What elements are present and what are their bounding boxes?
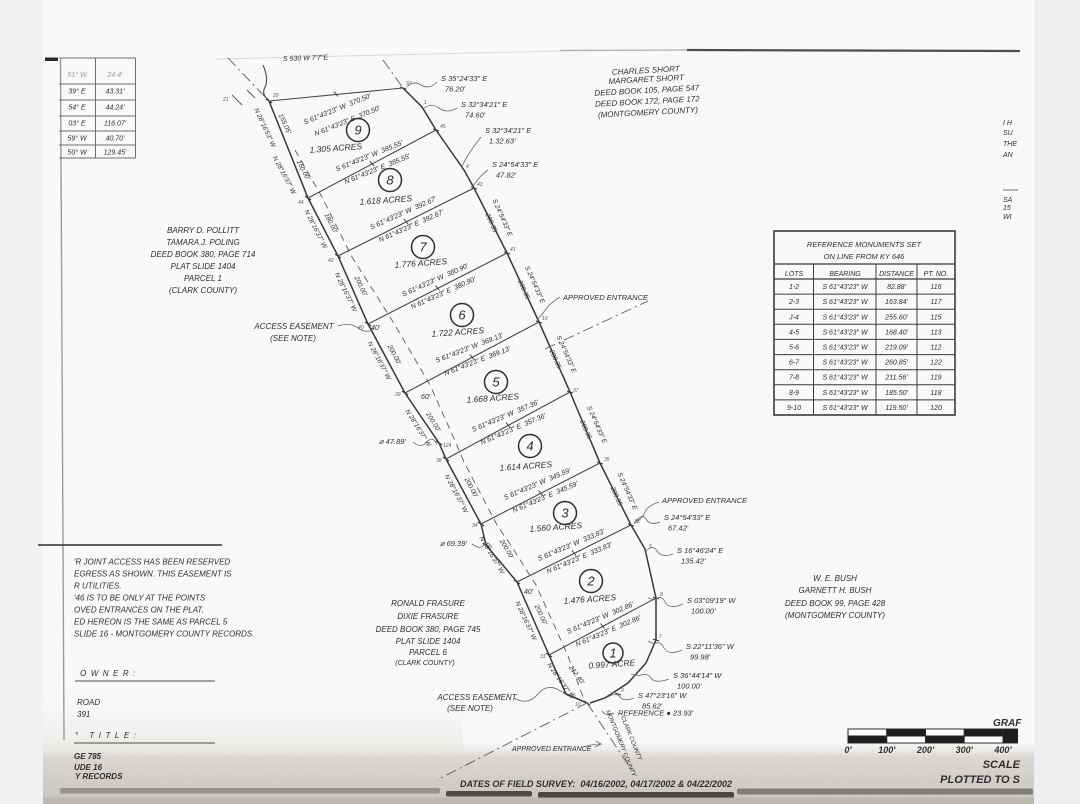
svg-text:44.24': 44.24' bbox=[106, 105, 126, 112]
svg-text:S 22°11′36″ W: S 22°11′36″ W bbox=[686, 642, 735, 651]
svg-text:135.42': 135.42' bbox=[681, 557, 706, 566]
svg-text:S 61°43′23″ W: S 61°43′23″ W bbox=[822, 328, 869, 336]
svg-text:(CLARK COUNTY): (CLARK COUNTY) bbox=[169, 286, 237, 295]
svg-text:EGRESS AS SHOWN. THIS EASEMENT: EGRESS AS SHOWN. THIS EASEMENT IS bbox=[74, 570, 232, 579]
svg-text:BEARING: BEARING bbox=[829, 271, 861, 278]
svg-text:S 61°43′23″ W: S 61°43′23″ W bbox=[822, 389, 869, 397]
svg-text:74.60': 74.60' bbox=[465, 111, 486, 120]
svg-text:TAMARA J. POLING: TAMARA J. POLING bbox=[166, 238, 239, 247]
svg-text:° TITLE:: ° TITLE: bbox=[75, 731, 140, 740]
svg-text:118: 118 bbox=[930, 390, 941, 397]
svg-text:120: 120 bbox=[930, 405, 942, 412]
svg-text:4-5: 4-5 bbox=[789, 329, 799, 336]
svg-text:117: 117 bbox=[930, 299, 942, 306]
svg-text:7: 7 bbox=[659, 634, 662, 640]
svg-text:116: 116 bbox=[930, 284, 941, 291]
svg-text:34: 34 bbox=[472, 523, 478, 529]
svg-text:43.31': 43.31' bbox=[106, 89, 126, 96]
svg-text:S 32°34′21″ E: S 32°34′21″ E bbox=[485, 126, 532, 135]
svg-text:LOTS: LOTS bbox=[785, 271, 804, 278]
svg-text:GE 785: GE 785 bbox=[74, 752, 102, 761]
svg-text:(SEE NOTE): (SEE NOTE) bbox=[270, 334, 316, 343]
svg-text:WI: WI bbox=[1003, 214, 1012, 221]
svg-text:5: 5 bbox=[649, 544, 652, 550]
svg-text:PLAT SLIDE 1404: PLAT SLIDE 1404 bbox=[171, 262, 236, 271]
svg-text:1: 1 bbox=[424, 100, 427, 106]
svg-text:46: 46 bbox=[570, 693, 576, 699]
svg-text:45: 45 bbox=[440, 124, 446, 130]
svg-text:122: 122 bbox=[930, 360, 942, 367]
svg-text:8: 8 bbox=[660, 592, 663, 598]
svg-text:S 61°43′23″ W: S 61°43′23″ W bbox=[822, 404, 869, 412]
svg-text:DEED BOOK 99, PAGE 428: DEED BOOK 99, PAGE 428 bbox=[785, 599, 886, 608]
svg-text:ED HEREON IS THE SAME AS PARCE: ED HEREON IS THE SAME AS PARCEL 5 bbox=[74, 618, 228, 627]
svg-text:119: 119 bbox=[930, 375, 941, 382]
svg-text:59° W: 59° W bbox=[67, 135, 88, 143]
svg-text:S 03°09′19″ W: S 03°09′19″ W bbox=[687, 596, 736, 605]
svg-text:9: 9 bbox=[621, 688, 624, 694]
svg-text:S 61°43′23″ W: S 61°43′23″ W bbox=[822, 374, 869, 382]
svg-text:′46 IS TO BE ONLY AT THE POINT: ′46 IS TO BE ONLY AT THE POINTS bbox=[74, 594, 206, 603]
svg-text:168.40': 168.40' bbox=[885, 329, 908, 336]
svg-text:APPROVED ENTRANCE: APPROVED ENTRANCE bbox=[562, 293, 649, 302]
svg-text:PLAT SLIDE 1404: PLAT SLIDE 1404 bbox=[396, 637, 461, 646]
svg-text:112: 112 bbox=[930, 345, 941, 352]
svg-text:300': 300' bbox=[956, 745, 974, 755]
svg-text:REFERENCE ● 23.93′: REFERENCE ● 23.93′ bbox=[618, 709, 694, 718]
svg-text:03° E: 03° E bbox=[68, 120, 86, 128]
svg-text:1.32.63': 1.32.63' bbox=[489, 137, 516, 146]
svg-text:S 36°44′14″ W: S 36°44′14″ W bbox=[673, 671, 722, 680]
svg-text:39° E: 39° E bbox=[68, 88, 86, 96]
svg-text:113: 113 bbox=[930, 329, 941, 336]
svg-text:⌀ 69.39′: ⌀ 69.39′ bbox=[440, 539, 467, 548]
svg-text:PT. NO.: PT. NO. bbox=[924, 271, 949, 278]
svg-text:200': 200' bbox=[916, 745, 935, 755]
svg-text:185.50': 185.50' bbox=[885, 390, 908, 397]
svg-text:ON LINE FROM KY 646: ON LINE FROM KY 646 bbox=[824, 252, 906, 261]
svg-text:ACCESS EASEMENT: ACCESS EASEMENT bbox=[436, 693, 517, 702]
svg-text:GARNETT H. BUSH: GARNETT H. BUSH bbox=[799, 586, 872, 595]
svg-text:W. E. BUSH: W. E. BUSH bbox=[813, 574, 857, 583]
svg-text:4: 4 bbox=[526, 439, 533, 454]
svg-text:S 16°46′24″ E: S 16°46′24″ E bbox=[677, 546, 724, 555]
svg-text:REFERENCE MONUMENTS SET: REFERENCE MONUMENTS SET bbox=[807, 240, 923, 249]
svg-text:163.84': 163.84' bbox=[885, 299, 908, 306]
svg-text:⌀ 47.89′: ⌀ 47.89′ bbox=[379, 437, 406, 446]
svg-text:OWNER:: OWNER: bbox=[80, 669, 140, 678]
svg-text:6-7: 6-7 bbox=[789, 360, 800, 367]
svg-text:115: 115 bbox=[930, 314, 941, 321]
svg-text:99.98': 99.98' bbox=[690, 653, 711, 662]
svg-text:44: 44 bbox=[298, 200, 304, 206]
svg-text:3: 3 bbox=[561, 506, 569, 521]
svg-text:24.4′: 24.4′ bbox=[107, 72, 124, 79]
svg-text:60': 60' bbox=[421, 394, 431, 401]
svg-text:S 24°54′33″ E: S 24°54′33″ E bbox=[664, 513, 711, 522]
svg-text:10: 10 bbox=[542, 316, 548, 322]
svg-text:260.85': 260.85' bbox=[884, 360, 908, 367]
svg-text:51° W: 51° W bbox=[67, 71, 88, 79]
svg-text:DISTANCE: DISTANCE bbox=[879, 271, 914, 278]
svg-text:GRAF: GRAF bbox=[993, 718, 1022, 729]
svg-text:SU: SU bbox=[1003, 130, 1014, 137]
svg-text:40.70': 40.70' bbox=[106, 136, 126, 143]
svg-text:33: 33 bbox=[634, 519, 640, 525]
svg-text:21: 21 bbox=[222, 97, 229, 103]
svg-text:38: 38 bbox=[436, 458, 442, 464]
svg-text:R UTILITIES.: R UTILITIES. bbox=[74, 582, 122, 591]
svg-text:219.09': 219.09' bbox=[884, 345, 908, 352]
svg-text:SA: SA bbox=[1003, 197, 1013, 204]
svg-text:APPROVED ENTRANCE: APPROVED ENTRANCE bbox=[511, 746, 592, 753]
svg-text:76.20': 76.20' bbox=[445, 85, 466, 94]
svg-text:J-4: J-4 bbox=[788, 314, 799, 321]
svg-text:41: 41 bbox=[510, 247, 516, 253]
svg-text:1-2: 1-2 bbox=[789, 284, 799, 291]
svg-text:OVED ENTRANCES ON THE PLAT.: OVED ENTRANCES ON THE PLAT. bbox=[74, 606, 204, 615]
svg-text:124: 124 bbox=[443, 443, 452, 449]
svg-text:40': 40' bbox=[524, 589, 534, 596]
svg-text:67.42': 67.42' bbox=[668, 524, 689, 533]
svg-text:5: 5 bbox=[492, 375, 500, 390]
svg-text:82.88': 82.88' bbox=[887, 284, 907, 291]
svg-text:S 24°54′33″ E: S 24°54′33″ E bbox=[492, 160, 539, 169]
svg-text:40': 40' bbox=[371, 325, 381, 332]
svg-text:50° W: 50° W bbox=[67, 149, 88, 157]
svg-text:400': 400' bbox=[993, 745, 1012, 755]
svg-text:42: 42 bbox=[328, 258, 334, 264]
svg-text:ROAD: ROAD bbox=[77, 698, 100, 707]
svg-text:UDE 16: UDE 16 bbox=[74, 763, 103, 772]
svg-text:THE: THE bbox=[1003, 141, 1017, 148]
svg-text:129.45': 129.45' bbox=[104, 150, 127, 157]
svg-text:S 61°43′23″ W: S 61°43′23″ W bbox=[822, 344, 869, 352]
svg-text:SLIDE 16 - MONTGOMERY COUNTY R: SLIDE 16 - MONTGOMERY COUNTY RECORDS. bbox=[74, 630, 254, 639]
svg-text:39: 39 bbox=[395, 392, 401, 398]
svg-text:100.00': 100.00' bbox=[691, 607, 716, 616]
svg-text:(SEE NOTE): (SEE NOTE) bbox=[447, 704, 493, 713]
svg-text:40: 40 bbox=[358, 325, 364, 331]
svg-text:54° E: 54° E bbox=[68, 104, 86, 112]
svg-text:(MONTGOMERY COUNTY): (MONTGOMERY COUNTY) bbox=[785, 611, 885, 620]
svg-text:29: 29 bbox=[272, 93, 279, 99]
svg-text:ACCESS EASEMENT: ACCESS EASEMENT bbox=[253, 322, 334, 331]
svg-text:S 61°43′23″ W: S 61°43′23″ W bbox=[822, 313, 869, 321]
svg-text:116.07': 116.07' bbox=[104, 121, 127, 128]
svg-text:S 47°23′16″ W: S 47°23′16″ W bbox=[638, 691, 687, 700]
svg-text:7: 7 bbox=[419, 240, 427, 255]
svg-text:8-9: 8-9 bbox=[789, 390, 799, 397]
svg-text:35: 35 bbox=[604, 457, 610, 463]
svg-text:BARRY D. POLLITT: BARRY D. POLLITT bbox=[167, 226, 240, 235]
svg-text:4: 4 bbox=[466, 164, 469, 170]
svg-text:7-8: 7-8 bbox=[789, 375, 799, 382]
svg-text:255.60': 255.60' bbox=[884, 314, 908, 321]
svg-text:5-6: 5-6 bbox=[789, 345, 799, 352]
svg-text:S 35°24′33″ E: S 35°24′33″ E bbox=[441, 74, 488, 83]
svg-text:AN: AN bbox=[1002, 152, 1014, 159]
svg-text:PLOTTED TO S: PLOTTED TO S bbox=[940, 774, 1021, 786]
svg-text:RONALD FRASURE: RONALD FRASURE bbox=[391, 599, 465, 608]
svg-text:S 61°43′23″ W: S 61°43′23″ W bbox=[822, 359, 869, 367]
svg-text:43: 43 bbox=[477, 182, 483, 188]
svg-text:2: 2 bbox=[586, 574, 595, 589]
svg-text:S 32°34′21″ E: S 32°34′21″ E bbox=[461, 100, 508, 109]
svg-text:SCALE: SCALE bbox=[983, 759, 1021, 771]
svg-text:′R JOINT ACCESS HAS BEEN RESER: ′R JOINT ACCESS HAS BEEN RESERVED bbox=[74, 558, 230, 567]
svg-text:(CLARK COUNTY): (CLARK COUNTY) bbox=[395, 660, 455, 667]
svg-text:DEED BOOK 380, PAGE 745: DEED BOOK 380, PAGE 745 bbox=[376, 625, 481, 634]
svg-text:9-10: 9-10 bbox=[787, 405, 801, 412]
svg-text:DEED BOOK 380, PAGE 714: DEED BOOK 380, PAGE 714 bbox=[151, 250, 256, 259]
svg-text:8: 8 bbox=[386, 173, 394, 188]
svg-text:211.56': 211.56' bbox=[884, 375, 908, 382]
svg-text:S 61°43′23″ W: S 61°43′23″ W bbox=[822, 298, 869, 306]
svg-text:391: 391 bbox=[77, 710, 90, 719]
svg-text:Y RECORDS: Y RECORDS bbox=[75, 772, 123, 781]
svg-text:S 61°43′23″ W: S 61°43′23″ W bbox=[822, 283, 869, 291]
svg-text:APPROVED ENTRANCE: APPROVED ENTRANCE bbox=[661, 496, 748, 505]
svg-text:9: 9 bbox=[354, 123, 361, 138]
svg-text:PARCEL 1: PARCEL 1 bbox=[184, 274, 222, 283]
svg-text:31: 31 bbox=[540, 654, 546, 660]
svg-text:I H: I H bbox=[1003, 120, 1013, 127]
svg-text:100.00': 100.00' bbox=[677, 682, 702, 691]
svg-text:DIXIE FRASURE: DIXIE FRASURE bbox=[397, 612, 459, 621]
svg-text:15: 15 bbox=[1003, 205, 1011, 212]
svg-text:6: 6 bbox=[458, 308, 466, 323]
svg-text:PARCEL 6: PARCEL 6 bbox=[409, 648, 447, 657]
svg-text:119.50': 119.50' bbox=[885, 405, 908, 412]
svg-text:DATES OF FIELD SURVEY: 04/16/: DATES OF FIELD SURVEY: 04/16/2002, 04/17… bbox=[460, 779, 732, 789]
svg-text:2-3: 2-3 bbox=[788, 299, 799, 306]
svg-text:37: 37 bbox=[573, 388, 579, 394]
svg-text:0': 0' bbox=[844, 745, 852, 755]
svg-text:37: 37 bbox=[406, 81, 412, 87]
svg-text:100': 100' bbox=[878, 745, 896, 755]
svg-text:47.82': 47.82' bbox=[496, 171, 517, 180]
